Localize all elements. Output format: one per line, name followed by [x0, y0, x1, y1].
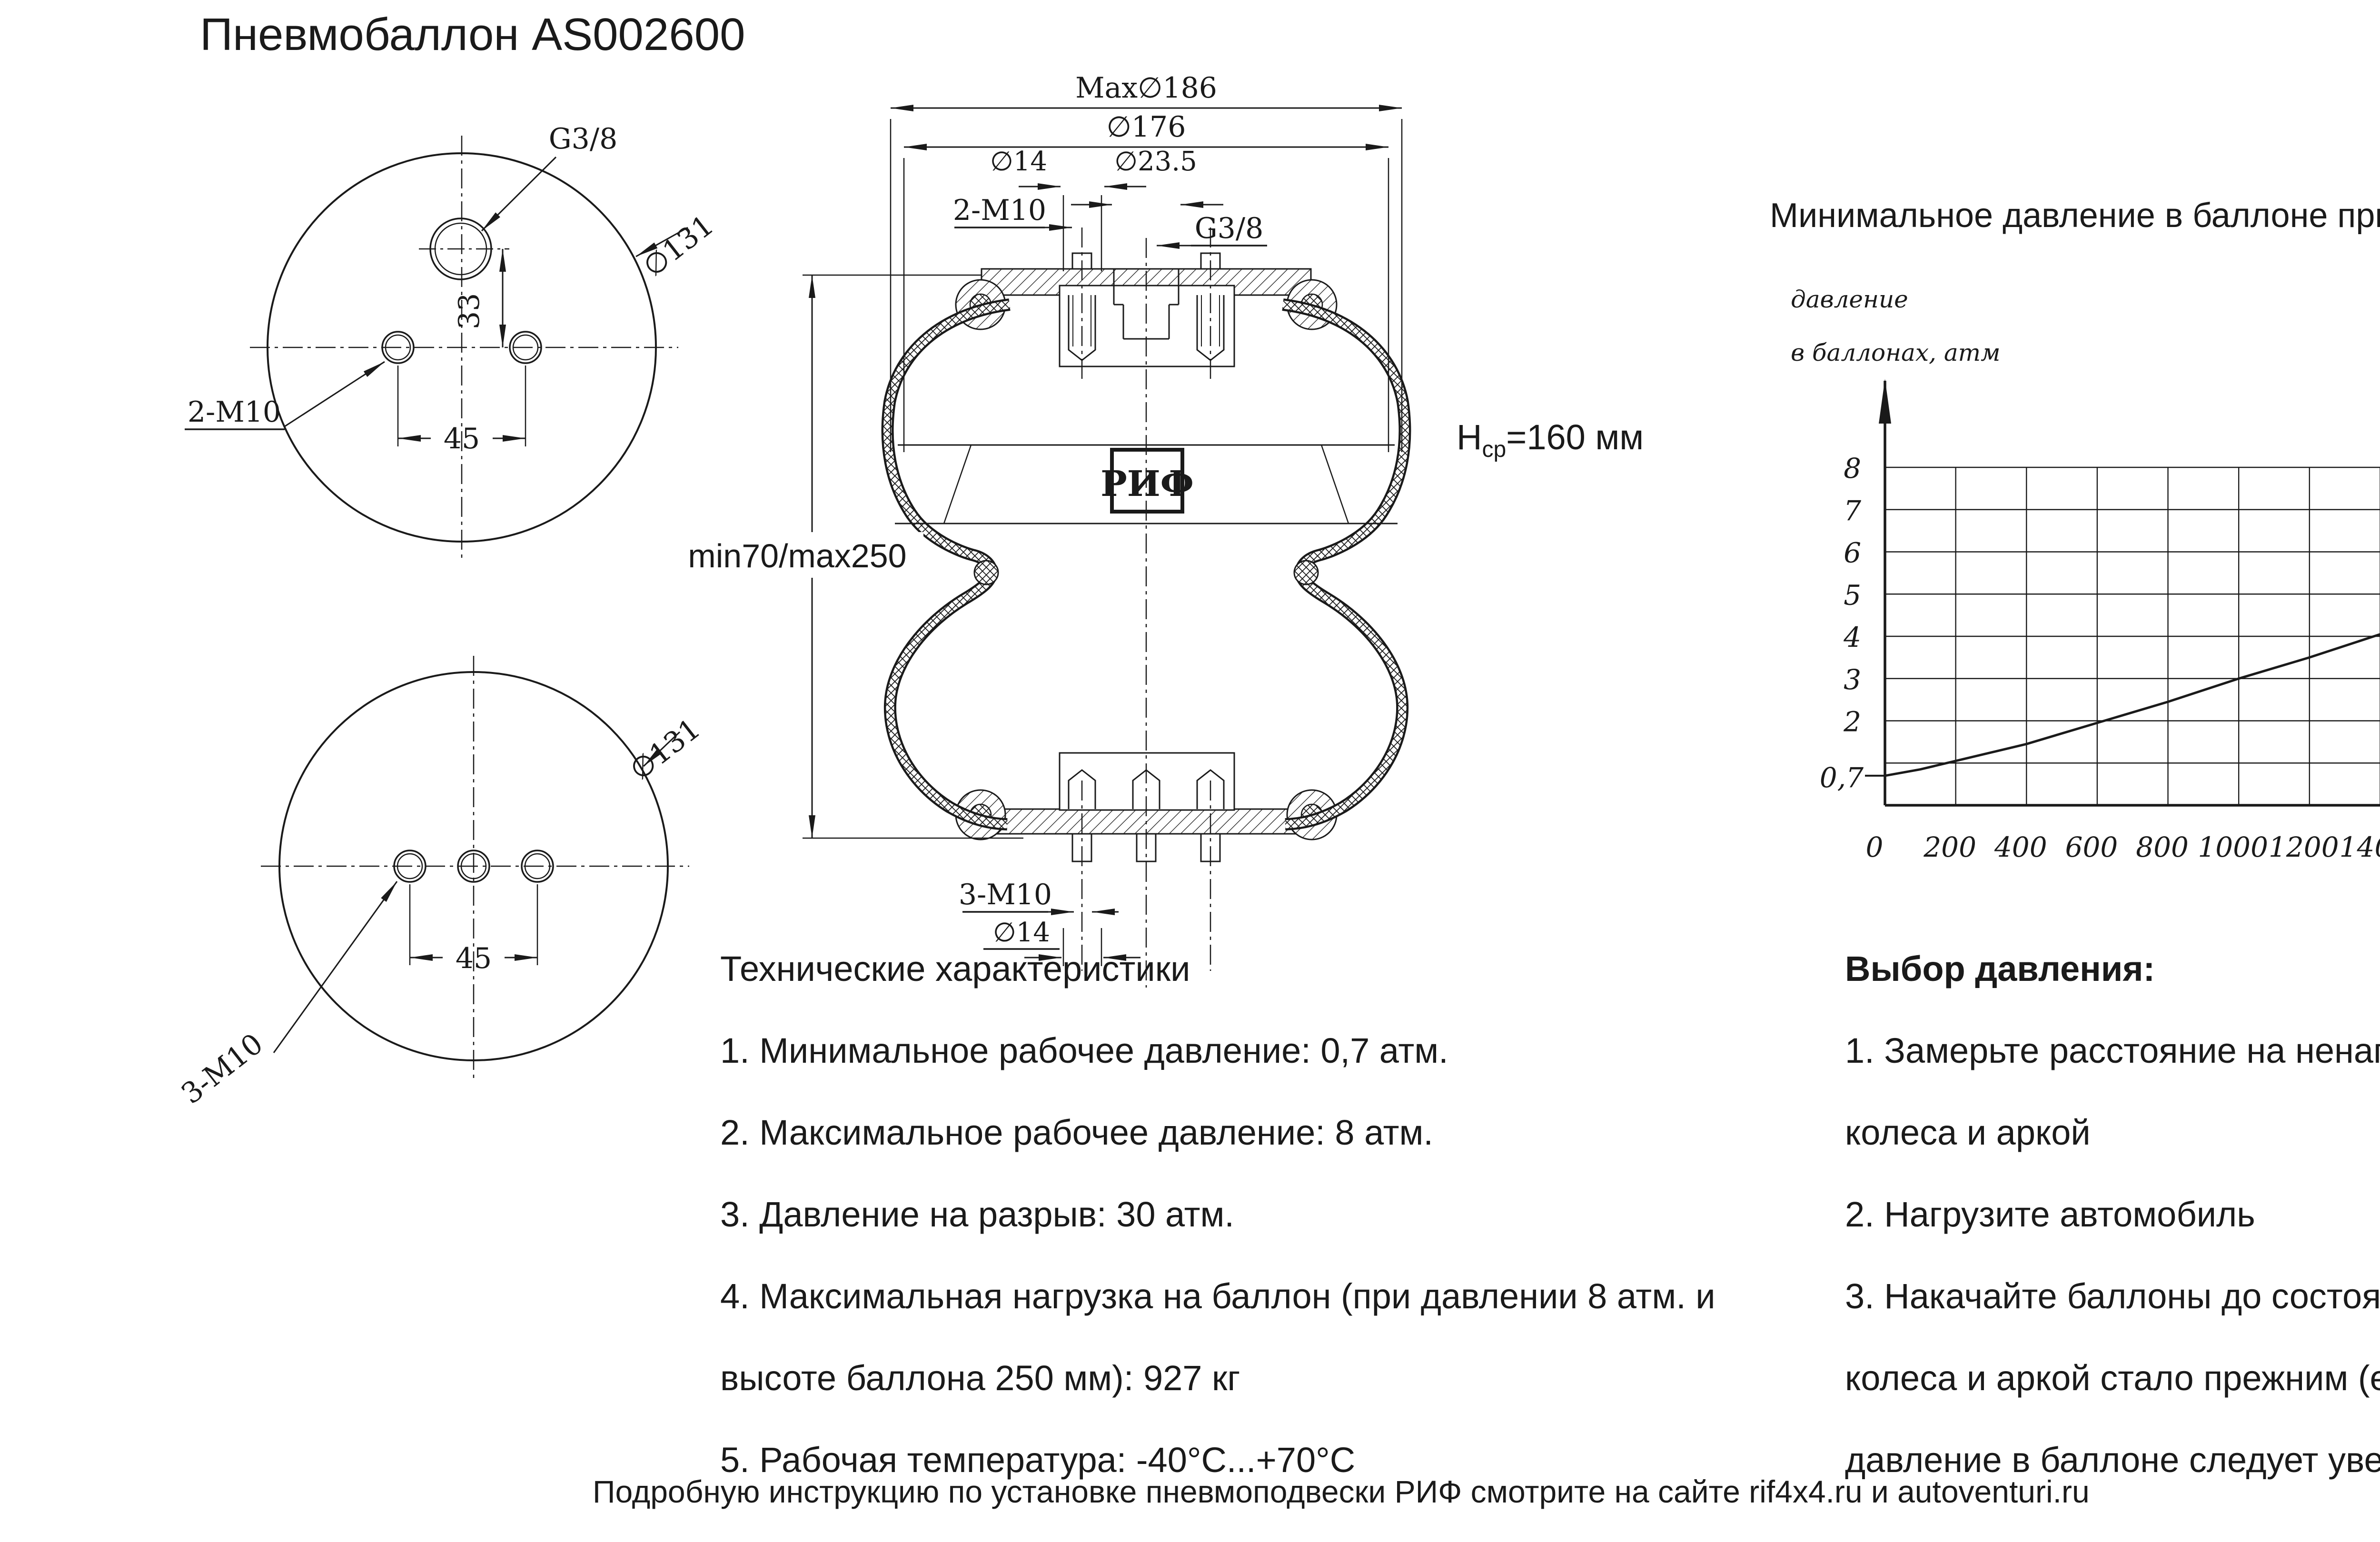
- pressure-choice-line: 3. Накачайте баллоны до состояния, чтобы…: [1845, 1255, 2380, 1337]
- chart-y-tick-label: 3: [1844, 663, 1861, 696]
- chart-y-tick-label: 7: [1844, 494, 1861, 527]
- chart-x-tick-label: 1200: [2269, 831, 2339, 863]
- specs-line: 2. Максимальное рабочее давление: 8 атм.: [720, 1092, 1716, 1174]
- page-title: Пневмобаллон AS002600: [200, 9, 745, 61]
- pressure-choice-block: Выбор давления: 1. Замерьте расстояние н…: [1845, 928, 2380, 1501]
- chart-x-tick-label: 200: [1923, 831, 1976, 863]
- mid-height-note: Hср=160 мм: [1457, 417, 1644, 463]
- chart-x-tick-label: 1000: [2198, 831, 2268, 863]
- chart-ylabel-line1: давление: [1791, 286, 1908, 313]
- pressure-choice-line: колеса и аркой стало прежним (если Вы хо…: [1845, 1337, 2380, 1419]
- chart-x-tick-label: 0: [1866, 831, 1884, 863]
- chart-y-tick-label: 8: [1844, 452, 1861, 484]
- pressure-choice-heading: Выбор давления:: [1845, 928, 2380, 1010]
- chart-y-tick-label: 4: [1843, 621, 1861, 653]
- chart-x-tick-label: 1400: [2340, 831, 2380, 863]
- specs-line: 3. Давление на разрыв: 30 атм.: [720, 1174, 1716, 1255]
- chart-x-tick-label: 400: [1994, 831, 2047, 863]
- pressure-choice-line: 1. Замерьте расстояние на ненагруженном …: [1845, 1010, 2380, 1092]
- chart-x-tick-label: 800: [2136, 831, 2189, 863]
- chart-curve: [1885, 544, 2380, 776]
- pressure-choice-line: 2. Нагрузите автомобиль: [1845, 1174, 2380, 1255]
- chart-ylabel-line2: в баллонах, атм: [1791, 339, 2001, 366]
- hcp-value: =160 мм: [1506, 417, 1644, 457]
- chart-start-pressure-label: 0,7: [1820, 761, 1864, 794]
- chart-y-axis-arrow: [1879, 379, 1891, 424]
- footer-note: Подробную инструкцию по установке пневмо…: [593, 1473, 2090, 1510]
- datasheet-page: G3/8 ∅131 2-M10 33 45 ∅131 3-M10 45: [0, 0, 2380, 1542]
- pressure-choice-line: колеса и аркой: [1845, 1092, 2380, 1174]
- hcp-sub: ср: [1482, 437, 1506, 462]
- chart-y-tick-label: 6: [1844, 537, 1861, 569]
- specs-heading: Технические характеристики: [720, 928, 1716, 1010]
- specs-block: Технические характеристики 1. Минимально…: [720, 928, 1716, 1501]
- chart-x-tick-label: 600: [2065, 831, 2118, 863]
- specs-line: 1. Минимальное рабочее давление: 0,7 атм…: [720, 1010, 1716, 1092]
- hcp-h: H: [1457, 417, 1482, 457]
- specs-line: 4. Максимальная нагрузка на баллон (при …: [720, 1255, 1716, 1337]
- chart-title: Минимальное давление в баллоне при нагру…: [1770, 196, 2380, 235]
- chart-y-tick-label: 5: [1844, 579, 1861, 611]
- chart-y-tick-label: 2: [1843, 706, 1861, 738]
- specs-line: высоте баллона 250 мм): 927 кг: [720, 1337, 1716, 1419]
